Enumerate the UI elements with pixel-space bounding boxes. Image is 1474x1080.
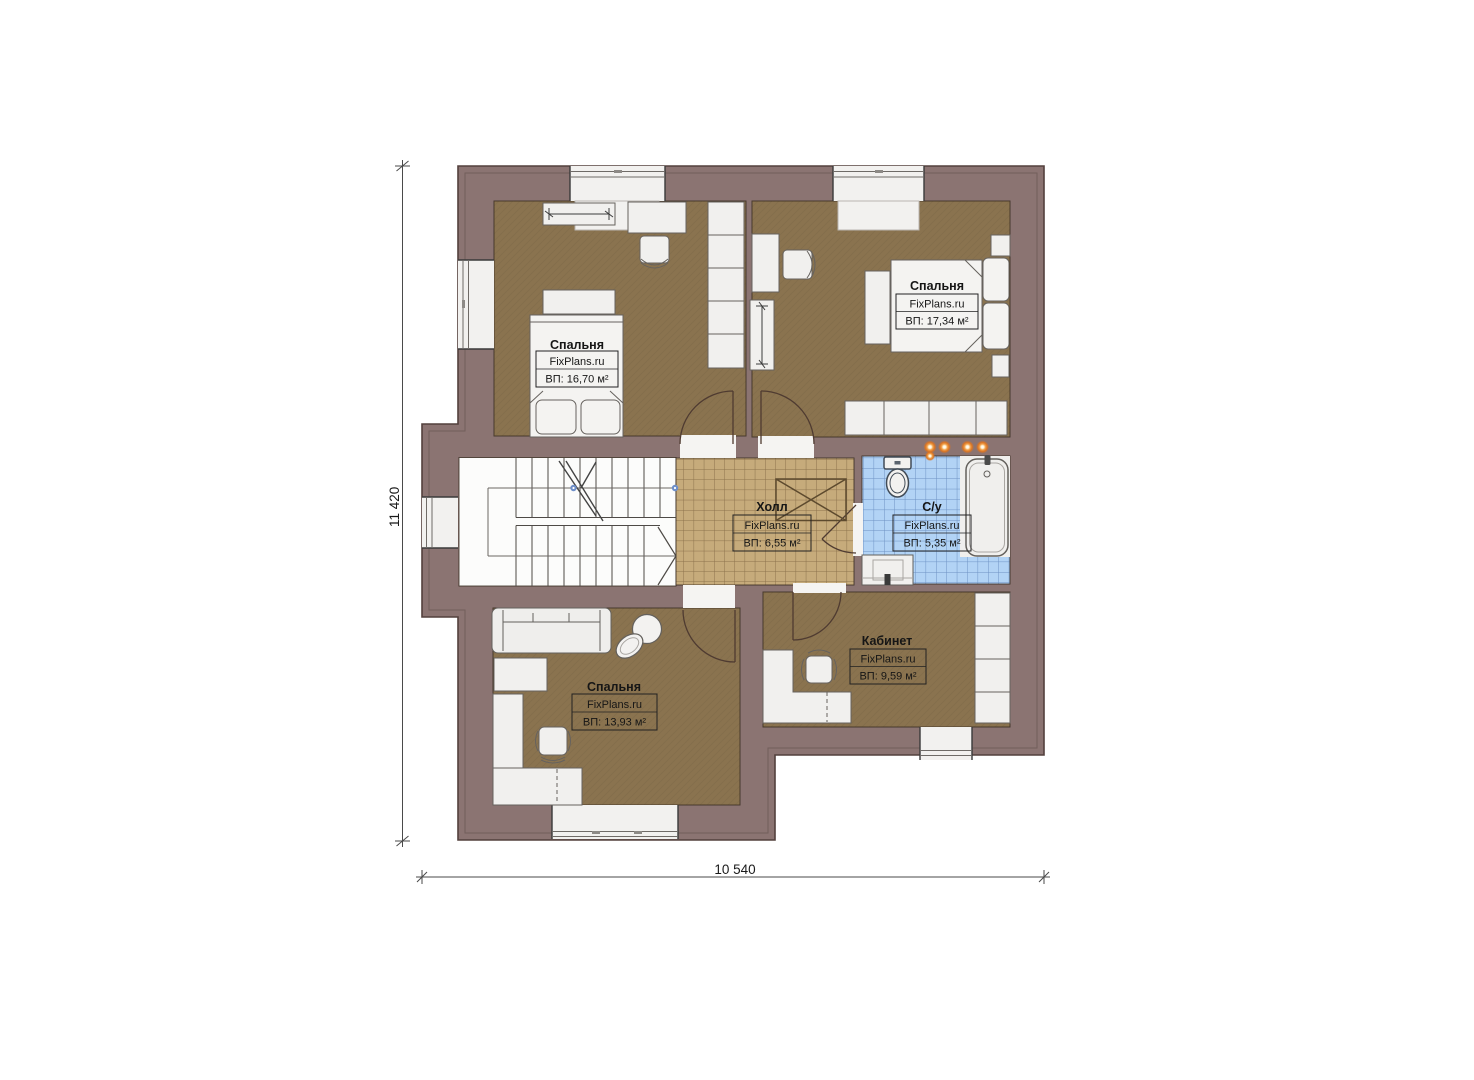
svg-text:FixPlans.ru: FixPlans.ru [860,654,915,666]
svg-text:FixPlans.ru: FixPlans.ru [744,520,799,532]
svg-text:Кабинет: Кабинет [862,634,913,648]
svg-text:11 420: 11 420 [387,487,402,527]
svg-text:ВП: 9,59 м²: ВП: 9,59 м² [859,671,916,683]
svg-text:Холл: Холл [756,500,787,514]
svg-text:Спальня: Спальня [587,680,641,694]
svg-text:ВП: 5,35 м²: ВП: 5,35 м² [903,538,960,550]
svg-text:ВП: 13,93 м²: ВП: 13,93 м² [583,717,647,729]
svg-text:С/у: С/у [922,500,942,514]
svg-text:FixPlans.ru: FixPlans.ru [909,299,964,311]
svg-text:Спальня: Спальня [550,338,604,352]
svg-text:FixPlans.ru: FixPlans.ru [549,356,604,368]
svg-text:FixPlans.ru: FixPlans.ru [587,699,642,711]
svg-text:ВП: 6,55 м²: ВП: 6,55 м² [743,538,800,550]
svg-text:ВП: 17,34 м²: ВП: 17,34 м² [905,316,969,328]
svg-text:10 540: 10 540 [714,862,755,877]
svg-text:Спальня: Спальня [910,279,964,293]
svg-text:FixPlans.ru: FixPlans.ru [904,520,959,532]
svg-text:ВП: 16,70 м²: ВП: 16,70 м² [545,374,609,386]
